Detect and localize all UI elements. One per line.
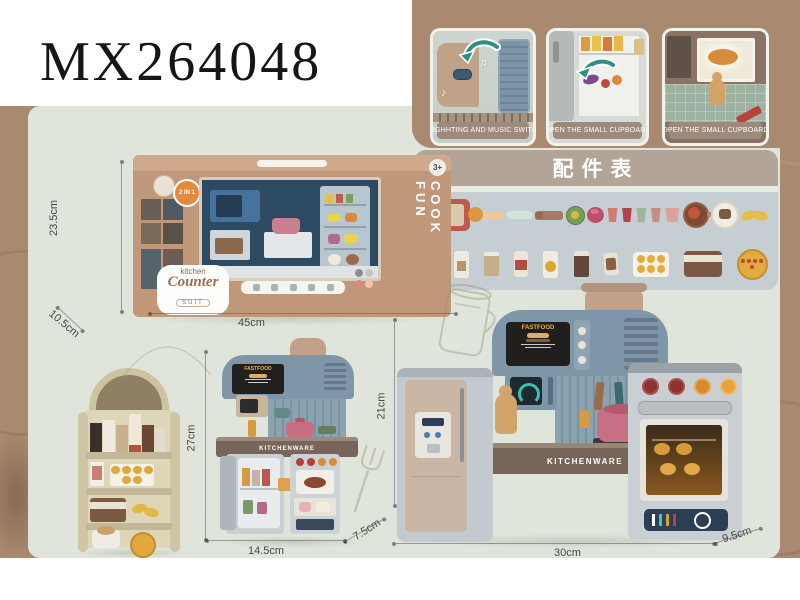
- fridge-top: [397, 368, 493, 377]
- accessory-measuring-cup-icon: [664, 208, 680, 222]
- egg: [122, 476, 131, 484]
- toy-fridge: [226, 454, 284, 534]
- accessory-dinner-plate-icon: [711, 201, 739, 229]
- shelf-line: [324, 226, 366, 228]
- toy-pot: [272, 218, 300, 234]
- accessory-cup-pink-icon: [607, 208, 619, 222]
- milk-carton: [90, 423, 102, 453]
- brand-logo: kitchen Counter SUIT: [157, 265, 229, 315]
- cup-sketch-doodle: [423, 272, 513, 370]
- toy-bowl: [346, 254, 359, 265]
- burger-patty: [526, 339, 550, 342]
- top-sign-panel: FASTFOOD: [222, 355, 354, 399]
- knob: [307, 458, 315, 466]
- toy-food: [328, 234, 340, 244]
- toy-oven: [290, 454, 340, 534]
- accessory-dot: [750, 265, 754, 269]
- carton: [116, 425, 128, 453]
- fridge-shelf: [240, 488, 278, 490]
- oven-top: [628, 363, 742, 373]
- accessory-milk-carton-tan-detail: [484, 252, 499, 256]
- photo-caption: OPEN THE SMALL CUPBOARD: [553, 122, 642, 139]
- curved-arrow-icon: [457, 37, 501, 67]
- brand-counter: Counter: [157, 274, 229, 291]
- accessory-egg-tray-contents: [635, 254, 667, 275]
- knob: [642, 378, 659, 395]
- accessory-cup-tan-icon: [650, 208, 662, 222]
- control-drawer: [296, 519, 334, 530]
- chicken-figure: [709, 79, 725, 105]
- accessory-dinner-plate-detail: [719, 209, 731, 219]
- egg: [111, 466, 120, 474]
- mini-photo: [141, 223, 161, 244]
- brand-suit: SUIT: [176, 299, 210, 307]
- chicken-head: [499, 385, 512, 398]
- accessory-frying-pan-detail: [688, 207, 700, 219]
- toy-food: [327, 214, 341, 222]
- door-handle: [553, 41, 559, 63]
- green-pan: [318, 426, 336, 434]
- accessory-milk-bottle-white-detail: [457, 261, 466, 271]
- toy-keys: [433, 113, 533, 122]
- shelf-post-left: [78, 412, 88, 552]
- combo-badge: 2 IN 1: [173, 179, 201, 207]
- shelf-board: [86, 452, 172, 459]
- accessory-pink-bowl-detail: [590, 209, 599, 214]
- bread-bun: [676, 443, 692, 455]
- pot-lid-handle: [295, 418, 305, 422]
- dim-box-width: 45cm: [238, 317, 265, 329]
- toy-stove: [264, 232, 312, 258]
- measure-line-large-height: [394, 320, 395, 506]
- dim-counter-width: 14.5cm: [248, 545, 284, 557]
- accessory-cup-green-icon: [635, 208, 647, 222]
- food-bottle: [603, 37, 612, 51]
- accessory-sauce-jar-detail: [571, 211, 579, 219]
- feature-icon: [271, 284, 278, 291]
- knob: [694, 378, 711, 395]
- photo-caption: LIGHHTING AND MUSIC SWITH: [437, 122, 529, 139]
- sun-icon: [578, 327, 586, 335]
- indicator-bar: [659, 514, 662, 526]
- feature-icon: [308, 284, 315, 291]
- microwave-window: [240, 399, 258, 413]
- indicator-bar: [673, 514, 676, 526]
- door-seam: [411, 476, 461, 477]
- accessory-snack-packet-detail: [605, 258, 616, 271]
- dispenser-button: [435, 432, 441, 438]
- fridge-bottle: [262, 469, 270, 486]
- feature-photo-cupboard-2: OPEN THE SMALL CUPBOARD: [662, 28, 769, 146]
- accessory-dot: [657, 265, 665, 273]
- dim-counter-height: 27cm: [185, 425, 197, 452]
- accessory-cocoa-carton-detail: [574, 251, 589, 256]
- toy-food: [336, 194, 343, 203]
- knob: [329, 458, 337, 466]
- oven-window: [296, 470, 334, 494]
- tub-label: [90, 502, 126, 509]
- accessory-dot: [647, 255, 655, 263]
- accessory-dot: [637, 255, 645, 263]
- box-slogan: COOK FUN: [413, 181, 443, 271]
- measure-line-box-height: [121, 162, 122, 312]
- menu-line: [521, 344, 555, 345]
- box-lid: [133, 155, 451, 171]
- brand-logo-stamp: [153, 175, 175, 197]
- toy-oven-unit: [628, 363, 742, 540]
- mini-photo: [141, 199, 161, 220]
- food-bottle: [592, 36, 601, 51]
- fridge-interior: [238, 458, 280, 528]
- accessories-panel: 配件表: [414, 150, 778, 290]
- gauge-dial: [518, 383, 540, 405]
- variant-dot: [355, 280, 363, 288]
- accessory-corn-right-icon: [751, 209, 769, 222]
- box-print: [92, 466, 102, 480]
- shelf-line: [579, 53, 635, 55]
- accessory-sauce-bottle-icon: [514, 251, 528, 277]
- accessory-milk-carton-tan-icon: [484, 252, 499, 276]
- accessory-ice-cream-tub-detail: [684, 255, 722, 262]
- accessory-dot: [747, 259, 751, 263]
- gauge-circle: [694, 512, 711, 529]
- egg: [133, 476, 142, 484]
- accessory-honey-bottle-icon: [543, 251, 558, 278]
- dispenser-display: [422, 418, 444, 426]
- accessory-cocoa-carton-icon: [574, 251, 589, 277]
- vent-grille: [324, 363, 346, 393]
- accessory-pink-bowl-icon: [587, 207, 604, 223]
- knob: [668, 378, 685, 395]
- open-door: [667, 36, 691, 78]
- oven-handle-bar: [638, 401, 732, 415]
- accessory-dot: [657, 255, 665, 263]
- toy-shelf: [320, 186, 370, 270]
- music-note-icon: ♪: [441, 87, 447, 99]
- burger-bun: [527, 333, 549, 338]
- shelf-bottles: [90, 414, 165, 453]
- shelf-line: [324, 204, 366, 206]
- fan-icon: [578, 356, 586, 364]
- feature-icon: [327, 284, 334, 291]
- accessory-dot: [637, 265, 645, 273]
- accessories-body: [414, 192, 778, 290]
- door-latch: [634, 39, 644, 55]
- accessories-row-1: [414, 192, 778, 238]
- age-badge: 3+: [429, 159, 446, 176]
- oil-bottle: [580, 410, 589, 428]
- accessory-frying-pan-icon: [683, 202, 709, 228]
- ice-cream-tub: [90, 498, 126, 522]
- accessory-milk-bottle-white-icon: [454, 251, 469, 278]
- accessory-dot: [759, 259, 763, 263]
- curved-arrow-icon: [575, 57, 617, 83]
- oven-knobs: [296, 458, 337, 466]
- cake-jar: [92, 530, 120, 548]
- oven-rack: [652, 439, 716, 441]
- fridge-bottle: [252, 470, 260, 486]
- lid-label: [257, 160, 327, 167]
- knob: [296, 458, 304, 466]
- egg: [133, 466, 142, 474]
- dessert: [316, 502, 330, 512]
- toy-oven: [210, 230, 250, 260]
- accessory-pizza-contents: [741, 253, 764, 276]
- box-window: [199, 177, 381, 281]
- feature-icons-strip: [241, 281, 345, 294]
- accessory-ladle-detail: [468, 207, 483, 222]
- accessory-fork-icon: [535, 211, 563, 220]
- control-panel: [644, 509, 728, 531]
- egg-tray: [110, 464, 154, 486]
- egg: [122, 466, 131, 474]
- fridge-item: [243, 500, 253, 514]
- accessory-ladle-icon: [472, 211, 504, 220]
- oil-bottle: [248, 420, 256, 437]
- steak: [304, 477, 326, 488]
- knob: [720, 378, 737, 395]
- pot-lid: [274, 408, 290, 418]
- toy-food: [346, 194, 353, 203]
- cocoa-carton: [142, 425, 154, 453]
- oven-knobs: [642, 378, 737, 395]
- chicken-figure: [495, 394, 517, 434]
- color-variant-dots: [355, 269, 375, 289]
- dim-large-height: 21cm: [375, 393, 387, 420]
- photo-caption: OPEN THE SMALL CUPBOARD: [669, 122, 762, 139]
- accessory-cup-red-icon: [621, 208, 633, 222]
- accessory-dot: [741, 259, 745, 263]
- variant-dot: [365, 269, 373, 277]
- accessory-fork-detail: [535, 212, 543, 219]
- shelf-post-right: [170, 412, 180, 552]
- toy-plate: [328, 254, 341, 265]
- dim-box-height: 23.5cm: [48, 200, 60, 236]
- snowflake-icon: [578, 341, 586, 349]
- measure-line-box-width: [150, 313, 456, 314]
- fridge-door: [405, 380, 467, 532]
- measure-line-counter-width: [207, 540, 345, 541]
- fridge-door-open: [220, 456, 236, 530]
- music-button: [453, 69, 472, 80]
- accessory-snack-packet-icon: [603, 253, 619, 276]
- toy-food: [326, 194, 333, 203]
- chicken-head: [712, 72, 722, 82]
- bread-bun: [654, 443, 670, 455]
- cereal-box: [90, 462, 104, 486]
- box-mini-photos: [141, 199, 185, 245]
- bottle: [155, 429, 165, 453]
- measure-line-counter-height: [205, 352, 206, 540]
- accessory-sauce-bottle-detail: [515, 260, 527, 270]
- swirl-sketch-doodle: [118, 338, 214, 382]
- menu-sign-text: FASTFOOD: [506, 322, 570, 331]
- feature-photo-cupboard-1: OPEN THE SMALL CUPBOARD: [546, 28, 649, 146]
- toy-microwave: [236, 395, 268, 417]
- toy-microwave: [210, 190, 260, 222]
- mini-photo: [163, 223, 183, 244]
- accessory-ice-cream-tub-icon: [684, 251, 722, 277]
- feature-photo-lighting-music: ♫ ♪ LIGHHTING AND MUSIC SWITH: [430, 28, 536, 146]
- microwave-handle: [548, 377, 553, 405]
- menu-board: FASTFOOD: [506, 322, 570, 366]
- menu-sign-text: FASTFOOD: [232, 364, 284, 372]
- shelf-line: [324, 248, 366, 250]
- toy-food: [344, 234, 358, 243]
- accessory-honey-bottle-detail: [545, 261, 556, 272]
- oven-tray-open: [294, 498, 336, 516]
- toy-food: [345, 213, 357, 222]
- pizza: [130, 532, 156, 558]
- oven-window: [215, 238, 243, 254]
- model-number: MX264048: [40, 30, 322, 94]
- dim-large-width: 30cm: [554, 547, 581, 559]
- accessory-pizza-icon: [737, 249, 768, 280]
- fridge-item: [257, 502, 267, 514]
- oven-window: [646, 425, 722, 495]
- product-box: 2 IN 1: [133, 155, 451, 317]
- toy-rack: [498, 39, 530, 113]
- measure-line-large-width: [394, 543, 716, 544]
- food-bottle: [614, 36, 623, 51]
- sauce-bottle: [129, 414, 141, 453]
- food-bottle: [581, 37, 590, 51]
- feature-icon: [290, 284, 297, 291]
- milk-bottle: [103, 420, 115, 453]
- hood-cap: [581, 283, 647, 292]
- accessory-egg-tray-icon: [633, 252, 669, 277]
- knob: [318, 458, 326, 466]
- shelf-board: [86, 488, 172, 495]
- microwave-window: [216, 195, 242, 217]
- bread-bun: [660, 463, 676, 475]
- accessory-rolling-pin-icon: [507, 211, 533, 219]
- oven-window-frame: [640, 419, 728, 501]
- menu-line: [525, 347, 551, 348]
- water-dispenser: [415, 412, 451, 458]
- footer-band: [0, 558, 800, 600]
- variant-dot: [355, 269, 363, 277]
- fridge-handle: [460, 388, 464, 462]
- indicator-bar: [652, 514, 655, 526]
- cake-top: [97, 526, 115, 535]
- fridge-bottle: [242, 468, 250, 486]
- dispenser-tray: [427, 444, 440, 453]
- accessory-sauce-jar-icon: [566, 206, 585, 225]
- egg: [144, 466, 153, 474]
- dessert: [299, 502, 311, 512]
- indicator-bar: [666, 514, 669, 526]
- dispenser-button: [424, 432, 430, 438]
- icon-strip: [574, 320, 590, 370]
- kitchen-counter-set: FASTFOOD KITCHENWARE: [212, 342, 362, 548]
- accessory-dot: [647, 265, 655, 273]
- bread-bun: [684, 463, 700, 475]
- accessories-title: 配件表: [414, 150, 778, 186]
- burger-sketch: [249, 374, 267, 378]
- menu-board: FASTFOOD: [232, 364, 284, 394]
- accessory-dot: [753, 259, 757, 263]
- menu-line: [248, 382, 268, 383]
- feature-icon: [253, 284, 260, 291]
- picture-cupboard: [697, 38, 755, 82]
- accessory-shelf-unit: [76, 368, 182, 556]
- variant-dot: [365, 280, 373, 288]
- toy-fridge: [397, 368, 493, 542]
- catalog-sheet: MX264048 ♫ ♪ LIGHHTING AND MUSIC SWITH: [0, 0, 800, 600]
- menu-line: [245, 379, 271, 380]
- roast-chicken-image: [708, 49, 738, 65]
